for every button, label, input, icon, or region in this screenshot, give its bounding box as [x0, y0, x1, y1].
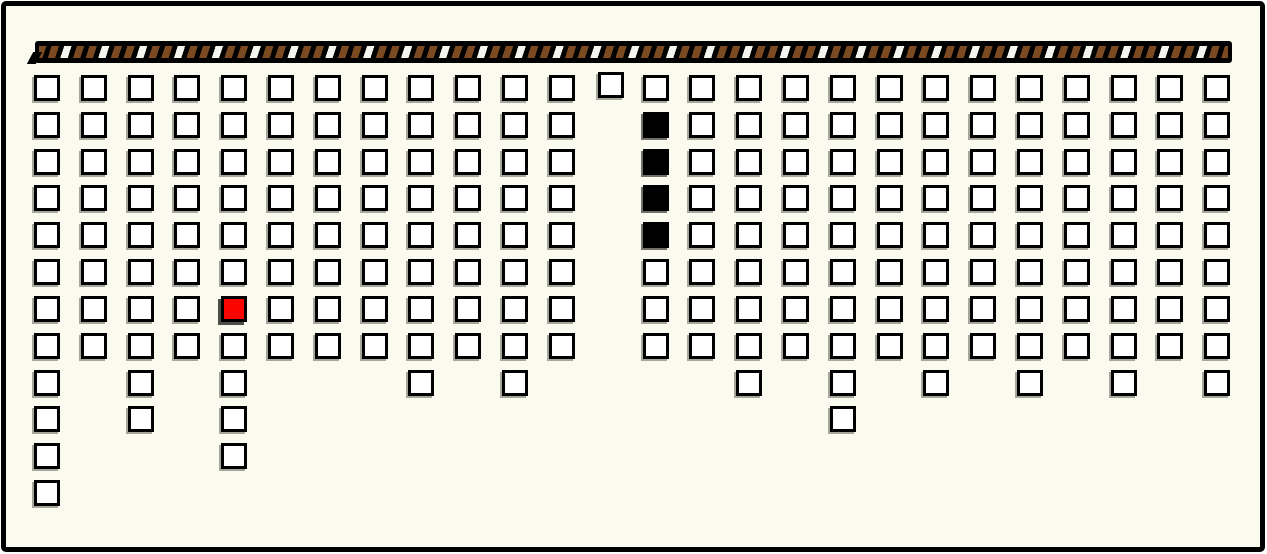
- cell-col10-row4[interactable]: [455, 185, 481, 211]
- cell-col3-row7[interactable]: [128, 296, 154, 322]
- cell-col19-row2[interactable]: [877, 112, 903, 138]
- cell-col21-row8[interactable]: [970, 333, 996, 359]
- cell-col2-row7[interactable]: [81, 296, 107, 322]
- cell-col6-row6[interactable]: [268, 259, 294, 285]
- cell-col2-row1[interactable]: [81, 75, 107, 101]
- cell-col26-row2[interactable]: [1204, 112, 1230, 138]
- cell-col25-row6[interactable]: [1157, 259, 1183, 285]
- cell-col15-row5[interactable]: [689, 222, 715, 248]
- cell-col7-row2[interactable]: [315, 112, 341, 138]
- cell-col1-row10[interactable]: [34, 406, 60, 432]
- cell-col5-row6[interactable]: [221, 259, 247, 285]
- cell-col12-row4[interactable]: [549, 185, 575, 211]
- cell-col5-row4[interactable]: [221, 185, 247, 211]
- cell-col23-row8[interactable]: [1064, 333, 1090, 359]
- cell-col15-row7[interactable]: [689, 296, 715, 322]
- cell-col10-row5[interactable]: [455, 222, 481, 248]
- cell-col9-row6[interactable]: [408, 259, 434, 285]
- cell-col14-row7[interactable]: [643, 296, 669, 322]
- cell-col12-row1[interactable]: [549, 75, 575, 101]
- cell-col9-row8[interactable]: [408, 333, 434, 359]
- cell-col17-row5[interactable]: [783, 222, 809, 248]
- cell-col10-row2[interactable]: [455, 112, 481, 138]
- cell-col6-row2[interactable]: [268, 112, 294, 138]
- cell-col7-row6[interactable]: [315, 259, 341, 285]
- cell-col5-row11[interactable]: [221, 443, 247, 469]
- cell-col12-row5[interactable]: [549, 222, 575, 248]
- cell-col9-row7[interactable]: [408, 296, 434, 322]
- cell-col1-row8[interactable]: [34, 333, 60, 359]
- cell-col16-row9[interactable]: [736, 370, 762, 396]
- cell-col11-row6[interactable]: [502, 259, 528, 285]
- cell-col12-row8[interactable]: [549, 333, 575, 359]
- cell-col19-row5[interactable]: [877, 222, 903, 248]
- cell-col3-row6[interactable]: [128, 259, 154, 285]
- cell-col6-row4[interactable]: [268, 185, 294, 211]
- cell-col26-row8[interactable]: [1204, 333, 1230, 359]
- cell-col24-row3[interactable]: [1111, 149, 1137, 175]
- cell-col14-row3-black[interactable]: [643, 149, 669, 175]
- cell-col4-row2[interactable]: [174, 112, 200, 138]
- cell-col21-row2[interactable]: [970, 112, 996, 138]
- cell-col4-row7[interactable]: [174, 296, 200, 322]
- cell-col26-row3[interactable]: [1204, 149, 1230, 175]
- cell-col9-row2[interactable]: [408, 112, 434, 138]
- cell-col10-row7[interactable]: [455, 296, 481, 322]
- cell-col9-row5[interactable]: [408, 222, 434, 248]
- cell-col5-row1[interactable]: [221, 75, 247, 101]
- cell-col12-row3[interactable]: [549, 149, 575, 175]
- cell-col3-row3[interactable]: [128, 149, 154, 175]
- cell-col4-row4[interactable]: [174, 185, 200, 211]
- cell-col22-row4[interactable]: [1017, 185, 1043, 211]
- cell-col16-row5[interactable]: [736, 222, 762, 248]
- cell-col1-row6[interactable]: [34, 259, 60, 285]
- cell-col16-row1[interactable]: [736, 75, 762, 101]
- cell-col9-row1[interactable]: [408, 75, 434, 101]
- cell-col23-row3[interactable]: [1064, 149, 1090, 175]
- cell-col11-row4[interactable]: [502, 185, 528, 211]
- cell-col10-row1[interactable]: [455, 75, 481, 101]
- cell-col26-row1[interactable]: [1204, 75, 1230, 101]
- cell-col11-row2[interactable]: [502, 112, 528, 138]
- cell-col4-row8[interactable]: [174, 333, 200, 359]
- cell-col21-row5[interactable]: [970, 222, 996, 248]
- cell-col2-row8[interactable]: [81, 333, 107, 359]
- cell-col5-row9[interactable]: [221, 370, 247, 396]
- cell-col8-row5[interactable]: [362, 222, 388, 248]
- cell-col16-row7[interactable]: [736, 296, 762, 322]
- cell-col14-row1[interactable]: [643, 75, 669, 101]
- cell-col10-row6[interactable]: [455, 259, 481, 285]
- cell-col1-row5[interactable]: [34, 222, 60, 248]
- cell-col2-row6[interactable]: [81, 259, 107, 285]
- cell-col1-row3[interactable]: [34, 149, 60, 175]
- cell-col17-row3[interactable]: [783, 149, 809, 175]
- cell-col22-row7[interactable]: [1017, 296, 1043, 322]
- cell-col7-row8[interactable]: [315, 333, 341, 359]
- cell-col16-row6[interactable]: [736, 259, 762, 285]
- cell-col1-row4[interactable]: [34, 185, 60, 211]
- cell-col26-row9[interactable]: [1204, 370, 1230, 396]
- cell-col8-row3[interactable]: [362, 149, 388, 175]
- cell-col10-row8[interactable]: [455, 333, 481, 359]
- cell-col6-row8[interactable]: [268, 333, 294, 359]
- cell-col23-row4[interactable]: [1064, 185, 1090, 211]
- cell-col7-row1[interactable]: [315, 75, 341, 101]
- cell-col12-row2[interactable]: [549, 112, 575, 138]
- cell-col4-row5[interactable]: [174, 222, 200, 248]
- cell-col14-row6[interactable]: [643, 259, 669, 285]
- cell-col5-row8[interactable]: [221, 333, 247, 359]
- cell-col14-row2-black[interactable]: [643, 112, 669, 138]
- cell-col16-row3[interactable]: [736, 149, 762, 175]
- cell-col22-row1[interactable]: [1017, 75, 1043, 101]
- cell-col3-row10[interactable]: [128, 406, 154, 432]
- cell-col25-row3[interactable]: [1157, 149, 1183, 175]
- cell-col6-row3[interactable]: [268, 149, 294, 175]
- cell-col11-row5[interactable]: [502, 222, 528, 248]
- cell-col22-row5[interactable]: [1017, 222, 1043, 248]
- cell-col1-row2[interactable]: [34, 112, 60, 138]
- cell-col19-row1[interactable]: [877, 75, 903, 101]
- cell-col20-row6[interactable]: [923, 259, 949, 285]
- cell-col4-row3[interactable]: [174, 149, 200, 175]
- cell-col17-row8[interactable]: [783, 333, 809, 359]
- cell-col17-row4[interactable]: [783, 185, 809, 211]
- cell-col3-row2[interactable]: [128, 112, 154, 138]
- cell-col3-row8[interactable]: [128, 333, 154, 359]
- cell-col26-row7[interactable]: [1204, 296, 1230, 322]
- cell-col8-row1[interactable]: [362, 75, 388, 101]
- cell-col3-row5[interactable]: [128, 222, 154, 248]
- cell-col14-row8[interactable]: [643, 333, 669, 359]
- cell-col25-row7[interactable]: [1157, 296, 1183, 322]
- cell-col24-row9[interactable]: [1111, 370, 1137, 396]
- cell-col8-row2[interactable]: [362, 112, 388, 138]
- cell-col6-row1[interactable]: [268, 75, 294, 101]
- cell-col14-row5-black[interactable]: [643, 222, 669, 248]
- cell-col20-row3[interactable]: [923, 149, 949, 175]
- cell-col18-row9[interactable]: [830, 370, 856, 396]
- cell-col15-row8[interactable]: [689, 333, 715, 359]
- cell-col2-row3[interactable]: [81, 149, 107, 175]
- cell-col1-row12[interactable]: [34, 480, 60, 506]
- cell-col23-row1[interactable]: [1064, 75, 1090, 101]
- rod-stripe-pattern: [39, 46, 1228, 58]
- cell-col8-row6[interactable]: [362, 259, 388, 285]
- cell-col16-row2[interactable]: [736, 112, 762, 138]
- cell-col18-row1[interactable]: [830, 75, 856, 101]
- cell-col5-row7-red[interactable]: [221, 296, 247, 322]
- cell-col25-row5[interactable]: [1157, 222, 1183, 248]
- cell-col9-row3[interactable]: [408, 149, 434, 175]
- cell-col4-row6[interactable]: [174, 259, 200, 285]
- cell-col5-row2[interactable]: [221, 112, 247, 138]
- cell-col18-row3[interactable]: [830, 149, 856, 175]
- cell-col19-row7[interactable]: [877, 296, 903, 322]
- cell-col7-row7[interactable]: [315, 296, 341, 322]
- cell-col18-row10[interactable]: [830, 406, 856, 432]
- cell-col10-row3[interactable]: [455, 149, 481, 175]
- cell-col24-row6[interactable]: [1111, 259, 1137, 285]
- cell-col20-row1[interactable]: [923, 75, 949, 101]
- cell-col8-row8[interactable]: [362, 333, 388, 359]
- cell-col1-row9[interactable]: [34, 370, 60, 396]
- cell-col20-row4[interactable]: [923, 185, 949, 211]
- cell-col21-row6[interactable]: [970, 259, 996, 285]
- cell-col21-row3[interactable]: [970, 149, 996, 175]
- cell-col24-row4[interactable]: [1111, 185, 1137, 211]
- cell-col6-row5[interactable]: [268, 222, 294, 248]
- cell-col2-row2[interactable]: [81, 112, 107, 138]
- cell-col8-row7[interactable]: [362, 296, 388, 322]
- cell-col5-row10[interactable]: [221, 406, 247, 432]
- cell-col5-row3[interactable]: [221, 149, 247, 175]
- cell-col21-row4[interactable]: [970, 185, 996, 211]
- cell-col19-row6[interactable]: [877, 259, 903, 285]
- cell-col18-row6[interactable]: [830, 259, 856, 285]
- cell-col2-row5[interactable]: [81, 222, 107, 248]
- cell-col9-row4[interactable]: [408, 185, 434, 211]
- cell-col25-row8[interactable]: [1157, 333, 1183, 359]
- cell-col22-row9[interactable]: [1017, 370, 1043, 396]
- cell-col1-row11[interactable]: [34, 443, 60, 469]
- cell-col9-row9[interactable]: [408, 370, 434, 396]
- cell-col24-row1[interactable]: [1111, 75, 1137, 101]
- cell-col16-row4[interactable]: [736, 185, 762, 211]
- cell-col18-row5[interactable]: [830, 222, 856, 248]
- cell-col25-row1[interactable]: [1157, 75, 1183, 101]
- cell-col1-row1[interactable]: [34, 75, 60, 101]
- cell-col5-row5[interactable]: [221, 222, 247, 248]
- cell-col19-row8[interactable]: [877, 333, 903, 359]
- cell-col20-row2[interactable]: [923, 112, 949, 138]
- cell-col20-row7[interactable]: [923, 296, 949, 322]
- cell-col4-row1[interactable]: [174, 75, 200, 101]
- cell-col25-row4[interactable]: [1157, 185, 1183, 211]
- cell-col22-row6[interactable]: [1017, 259, 1043, 285]
- cell-col11-row8[interactable]: [502, 333, 528, 359]
- cell-col25-row2[interactable]: [1157, 112, 1183, 138]
- cell-col22-row8[interactable]: [1017, 333, 1043, 359]
- cell-col26-row6[interactable]: [1204, 259, 1230, 285]
- cell-col6-row7[interactable]: [268, 296, 294, 322]
- cell-col12-row7[interactable]: [549, 296, 575, 322]
- cell-col17-row6[interactable]: [783, 259, 809, 285]
- cell-col1-row7[interactable]: [34, 296, 60, 322]
- cell-col18-row8[interactable]: [830, 333, 856, 359]
- cell-col21-row1[interactable]: [970, 75, 996, 101]
- cell-col23-row5[interactable]: [1064, 222, 1090, 248]
- cell-col22-row3[interactable]: [1017, 149, 1043, 175]
- cell-col26-row5[interactable]: [1204, 222, 1230, 248]
- cell-col18-row7[interactable]: [830, 296, 856, 322]
- cell-col15-row1[interactable]: [689, 75, 715, 101]
- cell-col23-row7[interactable]: [1064, 296, 1090, 322]
- cell-col3-row9[interactable]: [128, 370, 154, 396]
- cell-col16-row8[interactable]: [736, 333, 762, 359]
- cell-col15-row2[interactable]: [689, 112, 715, 138]
- cell-col17-row2[interactable]: [783, 112, 809, 138]
- cell-col24-row2[interactable]: [1111, 112, 1137, 138]
- cell-col7-row3[interactable]: [315, 149, 341, 175]
- cell-col11-row7[interactable]: [502, 296, 528, 322]
- cell-col26-row4[interactable]: [1204, 185, 1230, 211]
- cell-col23-row6[interactable]: [1064, 259, 1090, 285]
- cell-col23-row2[interactable]: [1064, 112, 1090, 138]
- cell-col19-row4[interactable]: [877, 185, 903, 211]
- cell-col15-row6[interactable]: [689, 259, 715, 285]
- cell-col17-row7[interactable]: [783, 296, 809, 322]
- cell-col24-row7[interactable]: [1111, 296, 1137, 322]
- cell-col18-row2[interactable]: [830, 112, 856, 138]
- cell-col22-row2[interactable]: [1017, 112, 1043, 138]
- cell-col12-row6[interactable]: [549, 259, 575, 285]
- cell-col24-row5[interactable]: [1111, 222, 1137, 248]
- cell-col20-row5[interactable]: [923, 222, 949, 248]
- cell-col14-row4-black[interactable]: [643, 185, 669, 211]
- cell-col20-row9[interactable]: [923, 370, 949, 396]
- cell-col19-row3[interactable]: [877, 149, 903, 175]
- cell-col21-row7[interactable]: [970, 296, 996, 322]
- cell-col13-row1[interactable]: [598, 72, 624, 98]
- cell-col20-row8[interactable]: [923, 333, 949, 359]
- cell-col2-row4[interactable]: [81, 185, 107, 211]
- cell-col15-row3[interactable]: [689, 149, 715, 175]
- cell-col15-row4[interactable]: [689, 185, 715, 211]
- cell-col3-row4[interactable]: [128, 185, 154, 211]
- cell-col24-row8[interactable]: [1111, 333, 1137, 359]
- board: [0, 0, 1267, 554]
- cell-col18-row4[interactable]: [830, 185, 856, 211]
- cell-col7-row4[interactable]: [315, 185, 341, 211]
- striped-rod: [35, 41, 1232, 63]
- cell-col11-row1[interactable]: [502, 75, 528, 101]
- cell-col8-row4[interactable]: [362, 185, 388, 211]
- cell-col3-row1[interactable]: [128, 75, 154, 101]
- cell-col7-row5[interactable]: [315, 222, 341, 248]
- cell-col11-row3[interactable]: [502, 149, 528, 175]
- cell-col11-row9[interactable]: [502, 370, 528, 396]
- cell-col17-row1[interactable]: [783, 75, 809, 101]
